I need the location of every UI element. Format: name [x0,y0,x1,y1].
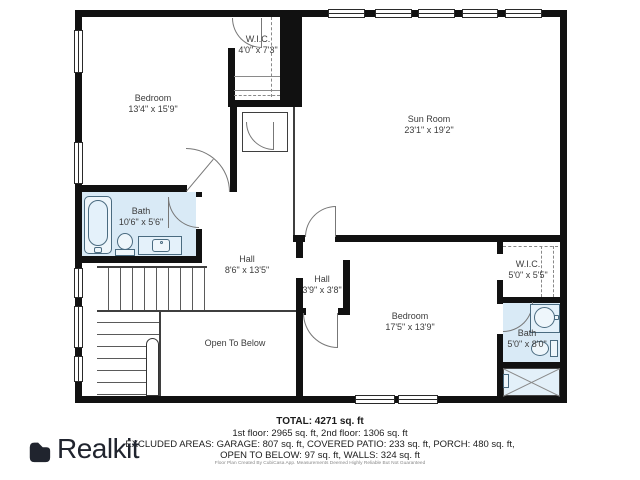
toilet-tank [115,249,135,256]
sink-faucet [554,315,559,320]
room-name: W.I.C. [238,34,277,45]
sink-faucet [160,241,163,244]
door-leaf [273,122,274,150]
railing-line [97,310,296,312]
window [462,9,498,18]
wall-segment [75,256,202,263]
room-dims: 4'0" x 7'3" [238,45,277,56]
window [418,9,455,18]
wall-segment [335,235,567,242]
window [375,9,412,18]
closet-shelf-line [234,90,280,91]
wall-segment [280,10,302,107]
room-name: Sun Room [404,114,453,125]
stair-upper-flight [97,268,207,310]
room-label-bedroom-1: Bedroom 13'4" x 15'9" [128,93,177,115]
wall-segment [75,396,567,403]
room-dims: 5'0" x 8'0" [507,339,546,350]
window [355,395,395,404]
door-leaf [335,206,336,237]
room-dims: 17'5" x 13'9" [385,322,434,333]
floor-plan-page: Bedroom 13'4" x 15'9" W.I.C. 4'0" x 7'3"… [0,0,640,480]
toilet-tank [550,340,558,357]
wall-segment [560,10,567,403]
door-arc [303,313,338,348]
realkit-bag-icon [26,438,53,463]
window [328,9,365,18]
toilet [117,233,133,250]
stair-edge [159,311,161,396]
closet-rod-line [271,17,272,97]
window [74,356,83,382]
sunroom-partition [293,107,295,235]
room-label-wic-2: W.I.C. 5'0" x 5'5" [508,259,547,281]
room-dims: 8'6" x 13'5" [225,265,269,276]
wall-segment [343,260,350,315]
door-leaf [168,197,169,228]
bathtub-faucet [94,247,102,253]
room-name: Bath [507,328,546,339]
room-label-hall-2: Hall 3'9" x 3'8" [302,274,341,296]
disclaimer-text: Floor Plan Created By CubiCasa App. Meas… [215,461,426,466]
room-name: Bath [119,206,163,217]
room-name: Bedroom [128,93,177,104]
room-label-open-to-below: Open To Below [205,338,266,349]
window [74,268,83,298]
stair-edge [97,266,207,268]
wall-segment [293,235,305,242]
stair-railing-newel [146,338,159,396]
room-name: W.I.C. [508,259,547,270]
shower-valve [503,374,509,388]
window [505,9,542,18]
room-label-bath-1: Bath 10'6" x 5'6" [119,206,163,228]
room-name: Bedroom [385,311,434,322]
wall-segment [497,242,503,254]
sink [534,307,555,328]
wall-segment [230,107,237,192]
door-arc [186,148,230,192]
summary-excluded-1: EXCLUDED AREAS: GARAGE: 807 sq. ft, COVE… [125,439,514,450]
summary-excluded-2: OPEN TO BELOW: 97 sq. ft, WALLS: 324 sq.… [220,450,420,461]
brand-logo-text: Realkit [57,433,139,465]
window [74,142,83,184]
summary-floors: 1st floor: 2965 sq. ft, 2nd floor: 1306 … [232,428,407,439]
closet-shelf-line [234,76,280,77]
room-dims: 5'0" x 5'5" [508,270,547,281]
room-label-hall-1: Hall 8'6" x 13'5" [225,254,269,276]
room-dims: 23'1" x 19'2" [404,125,453,136]
closet-rod-line [503,246,558,247]
window [74,30,83,73]
room-name: Hall [225,254,269,265]
room-dims: 3'9" x 3'8" [302,285,341,296]
room-label-bath-2: Bath 5'0" x 8'0" [507,328,546,350]
room-dims: 13'4" x 15'9" [128,104,177,115]
summary-total: TOTAL: 4271 sq. ft [276,416,363,427]
closet-rod-line [234,95,280,96]
window [398,395,438,404]
room-label-wic-1: W.I.C. 4'0" x 7'3" [238,34,277,56]
room-name: Hall [302,274,341,285]
room-dims: 10'6" x 5'6" [119,217,163,228]
room-label-sun-room: Sun Room 23'1" x 19'2" [404,114,453,136]
closet-rod-line [553,246,554,297]
door-leaf [337,313,338,348]
wall-segment [228,48,235,100]
window [74,306,83,348]
wall-segment [338,308,350,315]
room-label-bedroom-2: Bedroom 17'5" x 13'9" [385,311,434,333]
wall-segment [75,185,187,192]
room-name: Open To Below [205,338,266,349]
wall-segment [296,242,303,258]
wall-segment [296,311,303,396]
door-arc [305,206,336,237]
bathtub-basin [88,200,108,246]
